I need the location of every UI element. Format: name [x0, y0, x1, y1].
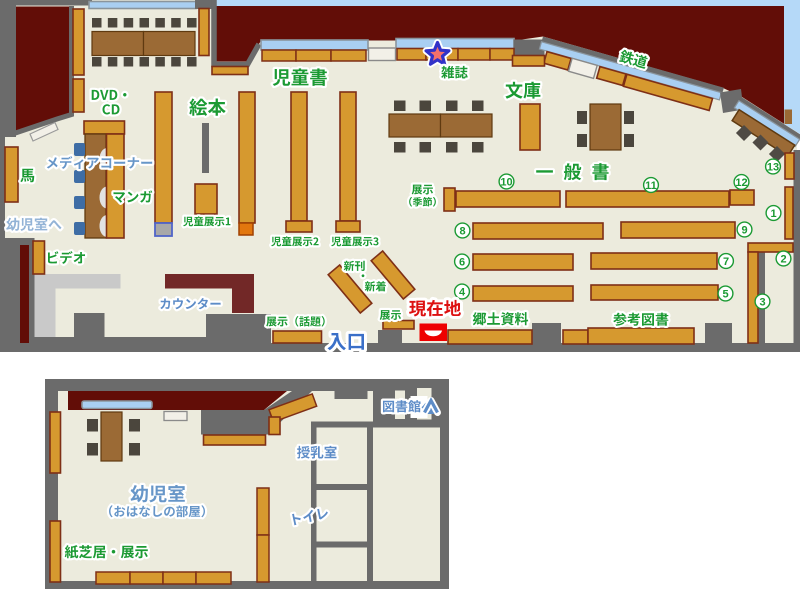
svg-text:7: 7: [723, 256, 729, 268]
svg-text:12: 12: [735, 177, 747, 189]
svg-text:6: 6: [459, 256, 465, 268]
svg-text:2: 2: [780, 253, 786, 265]
svg-text:9: 9: [741, 224, 747, 236]
svg-text:5: 5: [722, 288, 728, 300]
svg-text:11: 11: [645, 180, 657, 192]
svg-text:4: 4: [459, 286, 466, 298]
svg-text:8: 8: [459, 225, 465, 237]
svg-text:10: 10: [500, 176, 512, 188]
svg-text:1: 1: [770, 208, 776, 220]
svg-text:3: 3: [759, 296, 765, 308]
svg-text:13: 13: [767, 161, 779, 173]
